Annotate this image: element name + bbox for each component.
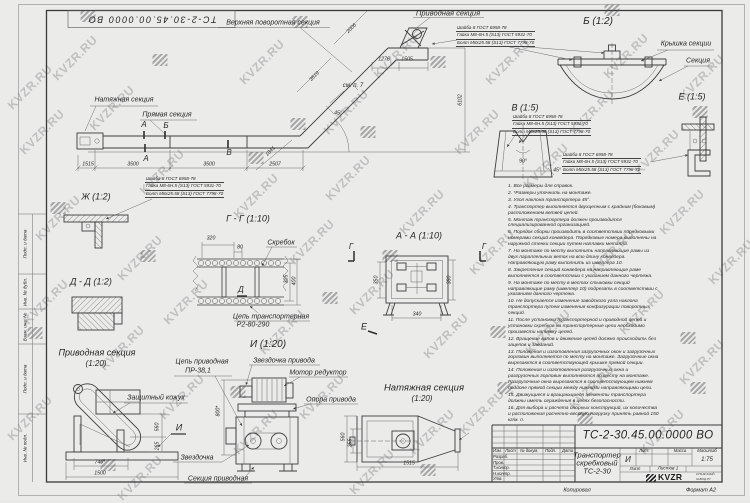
titleblock-scale-header: Масштаб xyxy=(697,449,717,453)
footer-format-label: Формат А2 xyxy=(686,488,716,494)
dim-2507: 2507 xyxy=(269,162,281,167)
label-guard-cover: Защитный кожух xyxy=(127,395,185,402)
note-item: 10. Не допускается изменение заводского … xyxy=(508,299,660,317)
section-mark-g: Г xyxy=(482,243,486,251)
dim-1515: 1515 xyxy=(403,461,415,466)
label-section-cover: Крышка секции xyxy=(661,41,712,48)
label-upper-turn-section: Верхняя поворотная секция xyxy=(226,20,320,27)
detail-title-dd: Д - Д (1:2) xyxy=(70,278,112,287)
note-item: 8. Закрепление секций конвейера на напра… xyxy=(508,268,660,280)
fastener-note-line: Гайка М8-6Н.5 (S13) ГОСТ 5931-70 xyxy=(145,183,224,190)
footer-copied-label: Копировал xyxy=(563,488,590,494)
note-item: 13. Положения и изготовления загрузочных… xyxy=(508,350,660,368)
dim-800: 800* xyxy=(216,406,221,417)
detail-title-v: В (1:5) xyxy=(511,104,538,113)
note-item: 7. На монтаже по месту выполнить направл… xyxy=(508,249,660,267)
detail-title-gg: Г - Г (1:10) xyxy=(226,215,270,224)
label-drive-sprocket: Звездочка привода xyxy=(253,358,315,365)
dim-1515: 1515 xyxy=(82,162,94,167)
label-drive-chain-type: ПР-38,1 xyxy=(185,368,211,375)
dim-305: 305 xyxy=(284,275,289,284)
dim-560: 560 xyxy=(155,423,160,432)
section-mark-d: Д xyxy=(238,286,244,294)
label-scraper: Скребок xyxy=(267,240,294,247)
label-drive-section-part: Секция приводная xyxy=(188,476,248,483)
dim-740: 740* xyxy=(95,460,106,465)
margin-label: Инв. № дубл. xyxy=(23,277,28,305)
titleblock-row-tcontrol: Т.контр. xyxy=(493,466,510,470)
titleblock-name-line3: ТС-2-30 xyxy=(583,467,611,475)
dim-3500: 3500 xyxy=(127,162,139,167)
titleblock-lit-header: Лит. xyxy=(639,449,649,453)
fastener-callout: Шайба 8 ГОСТ 6958-78 Гайка М8-6Н.5 (S13)… xyxy=(145,176,224,198)
note-item: 4. Транспортер выполняется двухцепным с … xyxy=(508,205,660,217)
note-item: 6. Порядок сборки производить в соответс… xyxy=(508,230,660,248)
section-mark-e: Е xyxy=(361,323,367,332)
fastener-note-line: Болт М8х25.58 (S13) ГОСТ 7798-70 xyxy=(562,167,641,174)
view-mark-i: И xyxy=(176,424,182,433)
label-section: Секция xyxy=(686,58,710,65)
dim-1276: 1276 xyxy=(378,57,390,62)
note-item: 5. Монтаж транспортера должен производит… xyxy=(508,218,660,230)
note-item: 2. *Размеры уточнить на монтаже. xyxy=(508,191,660,197)
label-drive-section: Приводная секция xyxy=(416,9,480,17)
titleblock-mass-header: Масса xyxy=(674,449,686,453)
fastener-note-line: Гайка М8-6Н.5 (S13) ГОСТ 5931-70 xyxy=(562,159,641,166)
titleblock-designation: ТС-2-30.45.00.0000 ВО xyxy=(583,430,714,442)
detail-title-b: Б (1:2) xyxy=(583,17,613,27)
dim-angle-45: 45° xyxy=(334,111,342,116)
dim-265: 265 xyxy=(155,442,160,451)
label-drive-chain: Цепь приводная xyxy=(176,359,229,366)
fastener-note-line: Болт М8х25.58 (S13) ГОСТ 7798-70 xyxy=(456,40,535,47)
fastener-note-line: Болт М8х25.58 (S13) ГОСТ 7798-70 xyxy=(145,191,224,198)
dim-1500: 1500 xyxy=(94,471,106,476)
dim-3500: 3500 xyxy=(203,162,215,167)
view-title-tension-section: Натяжная секция xyxy=(384,383,464,393)
label-conveyor-chain-type: Р2-80-290 xyxy=(237,322,270,329)
fastener-callout: Шайба 8 ГОСТ 6958-78 Гайка М8-6Н.5 (S13)… xyxy=(512,114,591,136)
kvzr-logo-subtext: КУЗНЕЧНЫЙ xyxy=(696,473,715,476)
margin-label: Подп. и дата xyxy=(23,230,28,259)
note-item: 1. Все размеры для справок. xyxy=(508,184,660,190)
dim-400: 400 xyxy=(292,277,297,286)
notes-list: 1. Все размеры для справок. 2. *Размеры … xyxy=(508,184,660,424)
label-straight-section: Прямая секция xyxy=(142,112,191,119)
titleblock-sheet-header: Лист xyxy=(630,467,641,471)
fastener-note-line: Болт М8х25.58 (S13) ГОСТ 7798-70 xyxy=(512,129,591,136)
view-title-drive-section: Приводная секция xyxy=(59,349,136,358)
view-title-i: И (1:20) xyxy=(250,340,286,350)
section-mark-a: А xyxy=(141,121,146,129)
titleblock-lit-value: И xyxy=(625,456,631,464)
detail-title-aa: А - А (1:10) xyxy=(396,232,442,241)
fastener-note-line: Гайка М8-6Н.5 (S13) ГОСТ 5931-70 xyxy=(512,121,591,128)
note-item: 9. На монтаже по месту в местах стыковки… xyxy=(508,281,660,299)
dim-560: 560 xyxy=(341,433,346,442)
dim-6102: 6102 xyxy=(458,94,463,106)
detail-title-zh: Ж (1:2) xyxy=(81,193,110,202)
titleblock-row-developed: Разраб. xyxy=(493,455,508,459)
dim-340: 340 xyxy=(413,312,422,317)
kvzr-logo-bars-icon xyxy=(646,474,656,482)
titleblock-col-izm: Изм. xyxy=(493,449,502,453)
titleblock-col-list: Лист xyxy=(505,449,516,453)
note-item: 11. После установки транспортерной и при… xyxy=(508,318,660,336)
label-tension-section: Натяжная секция xyxy=(94,97,153,104)
dim-80: 80 xyxy=(237,245,243,250)
fastener-callout: Шайба 8 ГОСТ 6958-78 Гайка М8-6Н.5 (S13)… xyxy=(562,152,641,174)
note-item: 12. Вращение валов и движение цепей долж… xyxy=(508,337,660,349)
note-item: 14. Положения и изготовления разгрузочны… xyxy=(508,368,660,392)
view-scale-tension-section: (1:20) xyxy=(412,395,433,403)
section-mark-v: В xyxy=(226,149,231,157)
kvzr-logo-subtext: ЗАВОД.РУ xyxy=(696,478,711,481)
top-stamp-designation: ТС-2-30.45.00.0000 ВО xyxy=(87,15,216,24)
note-item: 3. Угол наклона транспортера 45°. xyxy=(508,198,660,204)
margin-label: Инв. № подл. xyxy=(23,434,28,463)
dim-380: 380 xyxy=(447,276,452,285)
titleblock-col-date: Дата xyxy=(562,449,573,453)
margin-label: Подп. и дата xyxy=(23,365,28,394)
titleblock-col-sign: Подп. xyxy=(545,449,556,453)
dim-255: 255 xyxy=(348,439,353,448)
titleblock-sheets-value: Листов 1 xyxy=(658,467,679,472)
dim-1505: 1505 xyxy=(401,57,413,62)
titleblock-row-approved: Утв. xyxy=(493,477,503,481)
kvzr-logo-text: KVZR xyxy=(658,472,682,482)
label-motor-reducer: Мотор редуктор xyxy=(289,370,346,377)
titleblock-scale-value: 1:75 xyxy=(701,457,713,463)
note-item: 16. Для выбора и расчета опорных констру… xyxy=(508,406,660,424)
titleblock-col-doc: № докум. xyxy=(520,449,538,453)
detail-title-e: Е (1:5) xyxy=(678,93,705,102)
section-mark-a: А xyxy=(143,155,148,163)
section-mark-b: Б xyxy=(163,122,168,130)
label-sprocket: Звездочка xyxy=(180,455,213,462)
view-scale-drive-section: (1:20) xyxy=(86,360,107,368)
drawing-sheet: KVZR.RU KVZR.RU KVZR.RU KVZR.RU KVZR.RU … xyxy=(0,0,750,500)
fastener-callout: Шайба 8 ГОСТ 6958-78 Гайка М8-6Н.5 (S13)… xyxy=(456,25,535,47)
dim-angle-45: 45° xyxy=(553,168,561,173)
section-mark-g: Г xyxy=(349,243,353,251)
margin-label: Взам. инв. № xyxy=(23,312,28,340)
label-conveyor-chain: Цепь транспортерная xyxy=(233,314,309,321)
dim-320: 320 xyxy=(207,236,216,241)
dim-350: 350 xyxy=(374,276,379,285)
dim-angle-90: 90° xyxy=(519,159,527,164)
note-item: 15. Движущиеся и вращающиеся элементы тр… xyxy=(508,393,660,405)
label-see-note-7: см. п. 7 xyxy=(343,83,363,89)
fastener-note-line: Гайка М8-6Н.5 (S13) ГОСТ 5931-70 xyxy=(456,32,535,39)
label-drive-support: Опора привода xyxy=(306,397,356,404)
